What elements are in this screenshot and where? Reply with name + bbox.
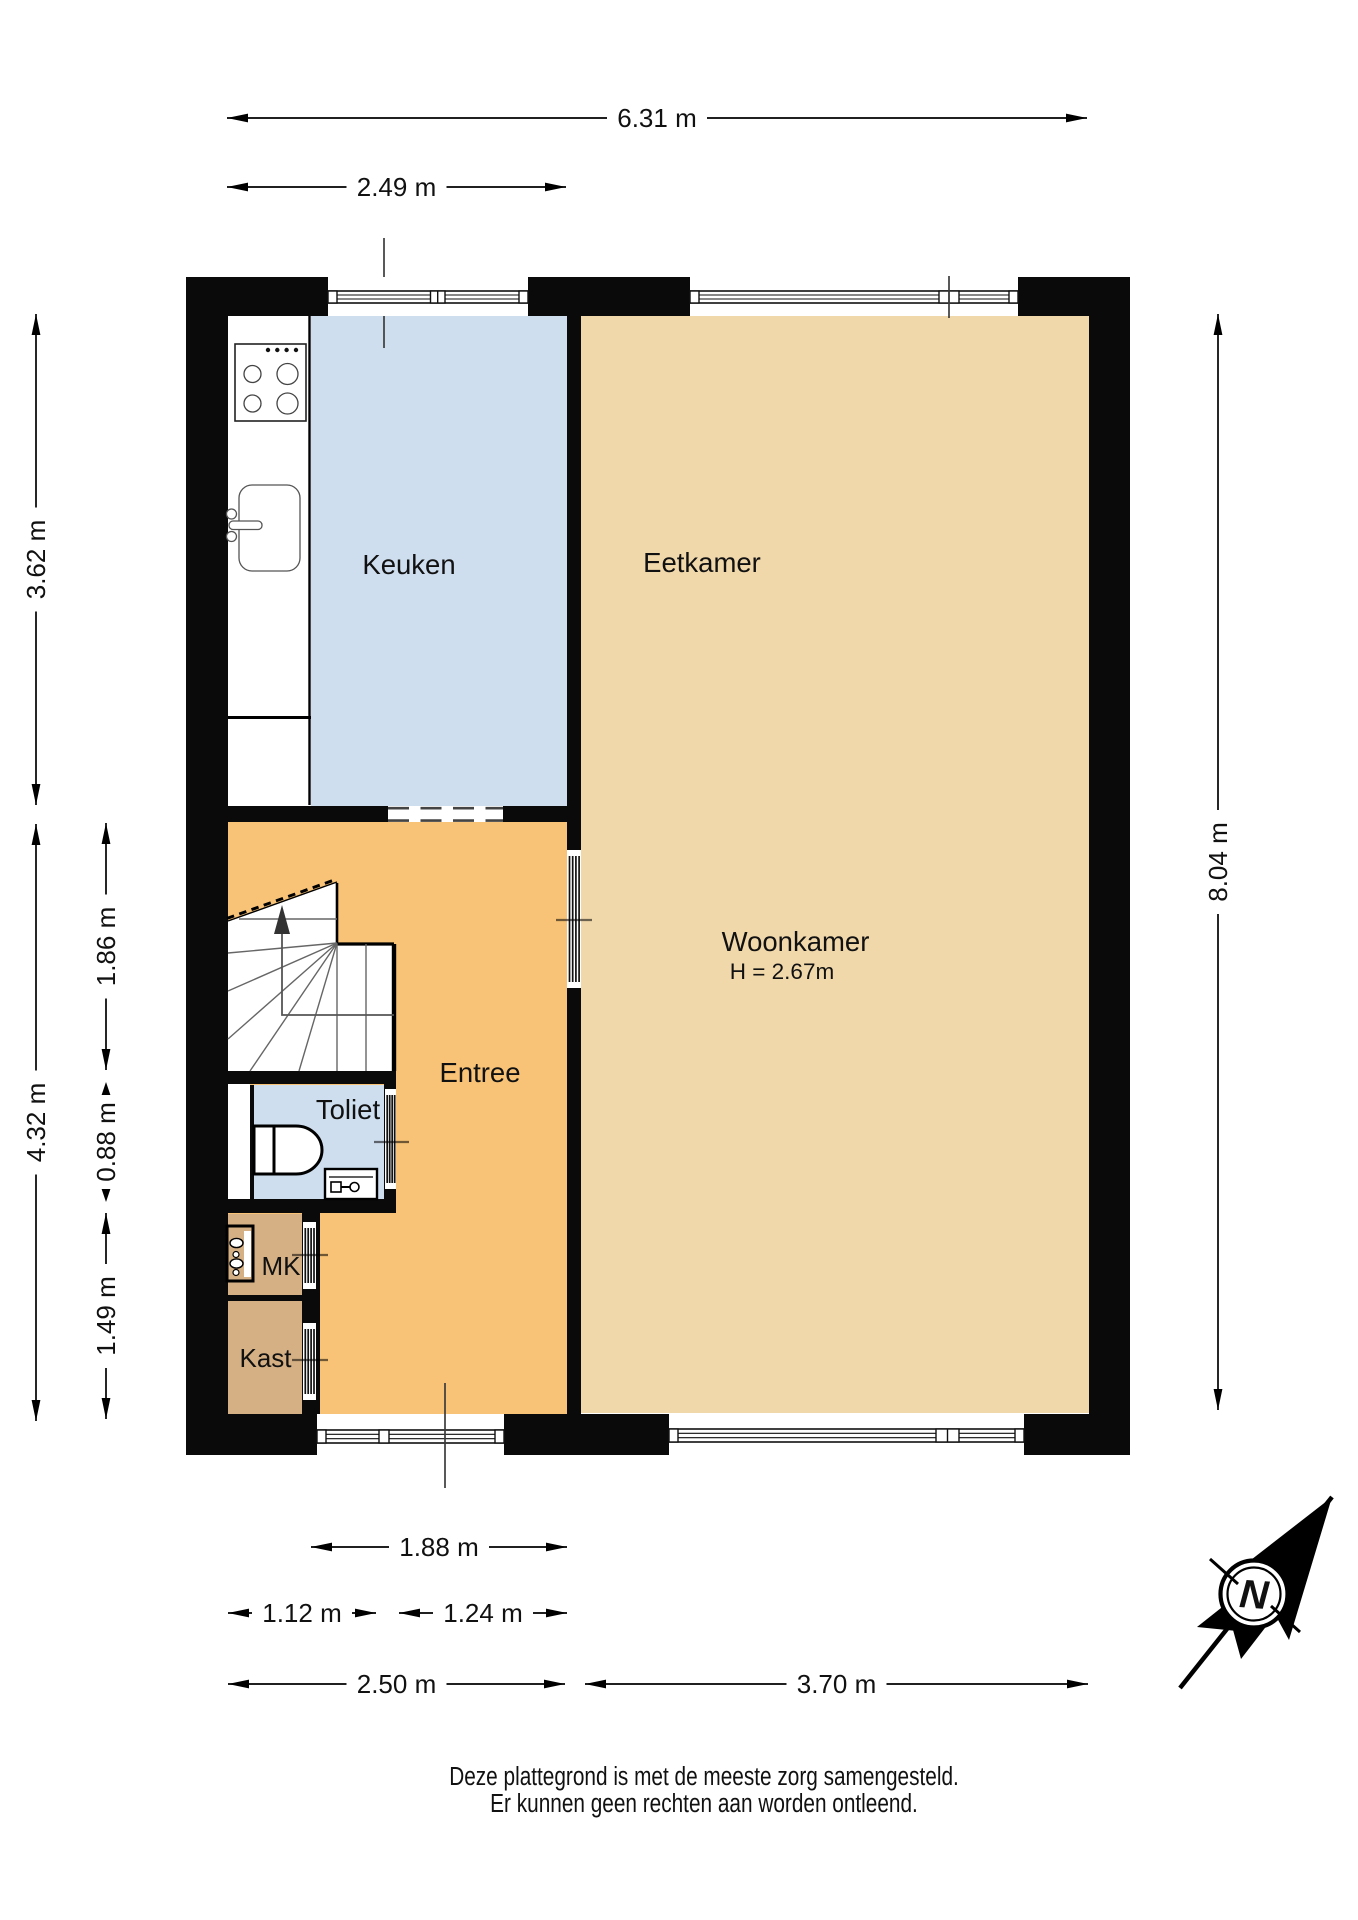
svg-text:2.49 m: 2.49 m [357, 172, 437, 202]
svg-text:1.86 m: 1.86 m [91, 907, 121, 987]
svg-text:Er kunnen geen rechten aan wor: Er kunnen geen rechten aan worden ontlee… [490, 1789, 918, 1818]
svg-text:1.49 m: 1.49 m [91, 1276, 121, 1356]
svg-text:1.24 m: 1.24 m [443, 1598, 523, 1628]
svg-text:Keuken: Keuken [362, 549, 455, 580]
svg-text:4.32 m: 4.32 m [21, 1083, 51, 1163]
svg-text:Entree: Entree [439, 1057, 520, 1088]
svg-text:1.12 m: 1.12 m [262, 1598, 342, 1628]
svg-text:3.70 m: 3.70 m [797, 1669, 877, 1699]
svg-text:8.04 m: 8.04 m [1203, 822, 1233, 902]
svg-text:Deze plattegrond is met de mee: Deze plattegrond is met de meeste zorg s… [449, 1762, 959, 1791]
svg-text:0.88 m: 0.88 m [91, 1102, 121, 1182]
svg-text:Toliet: Toliet [316, 1094, 381, 1125]
svg-text:MK: MK [262, 1251, 302, 1281]
svg-text:3.62 m: 3.62 m [21, 520, 51, 600]
svg-text:Eetkamer: Eetkamer [643, 547, 761, 578]
svg-text:Kast: Kast [239, 1343, 292, 1373]
svg-text:2.50 m: 2.50 m [357, 1669, 437, 1699]
svg-text:H = 2.67m: H = 2.67m [730, 959, 834, 984]
svg-text:6.31 m: 6.31 m [617, 103, 697, 133]
svg-text:1.88 m: 1.88 m [399, 1532, 479, 1562]
svg-text:Woonkamer: Woonkamer [722, 926, 870, 957]
svg-text:N: N [1238, 1572, 1271, 1618]
